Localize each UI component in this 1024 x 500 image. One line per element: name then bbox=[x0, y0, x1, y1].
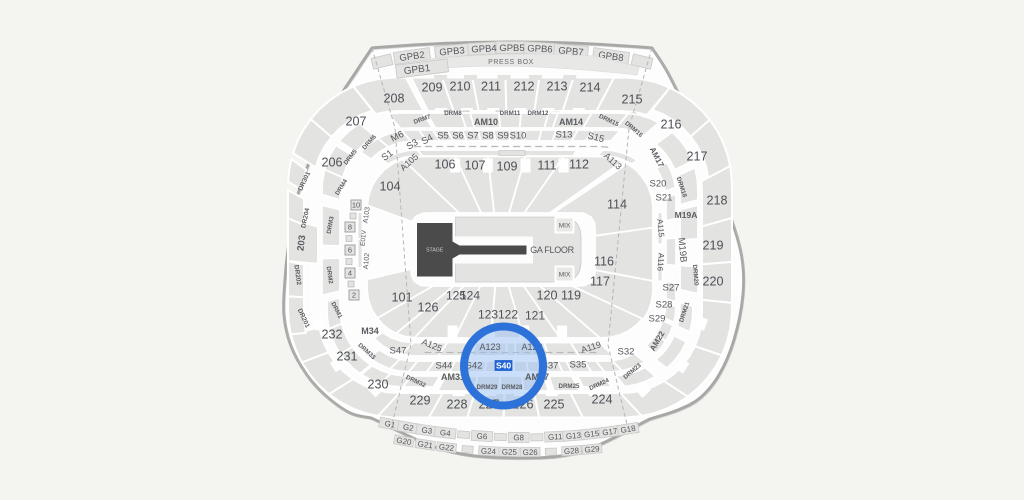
svg-text:216: 216 bbox=[660, 118, 681, 132]
svg-text:232: 232 bbox=[321, 328, 342, 342]
svg-text:S13: S13 bbox=[556, 129, 573, 140]
svg-text:119: 119 bbox=[561, 289, 581, 303]
svg-text:S6: S6 bbox=[452, 130, 464, 141]
svg-text:225: 225 bbox=[543, 398, 564, 412]
svg-text:126: 126 bbox=[417, 301, 438, 315]
svg-text:123: 123 bbox=[478, 307, 498, 321]
svg-text:101: 101 bbox=[391, 291, 412, 305]
svg-text:GPB5: GPB5 bbox=[499, 43, 524, 54]
svg-text:G4: G4 bbox=[439, 428, 451, 438]
svg-text:DRM8: DRM8 bbox=[444, 110, 462, 117]
svg-text:209: 209 bbox=[421, 81, 442, 95]
svg-text:125: 125 bbox=[446, 288, 466, 302]
svg-text:M19B: M19B bbox=[676, 237, 689, 263]
svg-text:228: 228 bbox=[446, 398, 467, 412]
svg-text:122: 122 bbox=[498, 307, 518, 321]
svg-text:G13: G13 bbox=[566, 431, 582, 441]
svg-text:G3: G3 bbox=[421, 425, 433, 436]
svg-text:S40: S40 bbox=[496, 361, 511, 371]
svg-text:G25: G25 bbox=[502, 447, 518, 456]
svg-text:104: 104 bbox=[379, 180, 400, 194]
svg-text:211: 211 bbox=[481, 80, 501, 94]
svg-text:S47: S47 bbox=[390, 345, 407, 356]
svg-text:213: 213 bbox=[546, 80, 567, 94]
svg-text:DRM29: DRM29 bbox=[477, 384, 499, 391]
svg-text:MIX: MIX bbox=[559, 271, 571, 278]
svg-text:S28: S28 bbox=[656, 299, 673, 310]
svg-text:107: 107 bbox=[464, 159, 485, 173]
svg-text:210: 210 bbox=[449, 80, 470, 94]
svg-text:G29: G29 bbox=[584, 444, 600, 454]
svg-text:S44: S44 bbox=[436, 360, 453, 371]
svg-text:112: 112 bbox=[569, 158, 589, 172]
svg-text:A123: A123 bbox=[479, 342, 500, 352]
svg-text:DRM25: DRM25 bbox=[559, 383, 581, 390]
svg-text:M34: M34 bbox=[361, 326, 379, 336]
svg-text:106: 106 bbox=[434, 158, 455, 172]
svg-text:S8: S8 bbox=[482, 130, 494, 141]
svg-text:120: 120 bbox=[536, 289, 557, 303]
svg-text:A102: A102 bbox=[363, 253, 371, 270]
svg-text:G26: G26 bbox=[523, 448, 539, 457]
svg-text:10: 10 bbox=[352, 201, 360, 210]
svg-text:GPB4: GPB4 bbox=[471, 43, 497, 55]
svg-text:S21: S21 bbox=[656, 192, 673, 203]
svg-text:230: 230 bbox=[367, 378, 388, 392]
svg-text:214: 214 bbox=[579, 81, 600, 95]
svg-text:PRESS BOX: PRESS BOX bbox=[488, 59, 534, 66]
svg-text:208: 208 bbox=[383, 92, 404, 106]
svg-text:AM14: AM14 bbox=[559, 117, 583, 127]
svg-text:224: 224 bbox=[591, 393, 612, 407]
svg-text:116: 116 bbox=[594, 255, 614, 269]
svg-text:S32: S32 bbox=[618, 346, 635, 357]
svg-text:229: 229 bbox=[409, 394, 430, 408]
svg-text:212: 212 bbox=[513, 80, 534, 94]
svg-text:S5: S5 bbox=[437, 130, 449, 141]
svg-text:S27: S27 bbox=[663, 282, 680, 293]
svg-text:DRM28: DRM28 bbox=[502, 384, 524, 391]
svg-text:S20: S20 bbox=[650, 178, 667, 189]
svg-text:A116: A116 bbox=[655, 253, 666, 272]
svg-text:STAGE: STAGE bbox=[426, 247, 444, 253]
svg-text:MIX: MIX bbox=[559, 222, 571, 229]
svg-text:G15: G15 bbox=[584, 429, 601, 440]
svg-text:DRM11: DRM11 bbox=[500, 110, 521, 117]
svg-text:S9: S9 bbox=[497, 130, 509, 141]
svg-text:G8: G8 bbox=[513, 433, 524, 442]
svg-text:117: 117 bbox=[590, 275, 610, 289]
svg-text:231: 231 bbox=[336, 350, 357, 364]
svg-text:GA FLOOR: GA FLOOR bbox=[530, 245, 574, 255]
svg-text:G28: G28 bbox=[564, 446, 580, 456]
svg-text:203: 203 bbox=[295, 235, 308, 252]
svg-text:215: 215 bbox=[621, 93, 642, 107]
svg-text:121: 121 bbox=[525, 308, 545, 322]
svg-text:M19A: M19A bbox=[675, 210, 698, 220]
svg-text:8: 8 bbox=[348, 223, 352, 232]
svg-text:218: 218 bbox=[706, 194, 727, 208]
svg-text:109: 109 bbox=[496, 160, 517, 174]
svg-text:114: 114 bbox=[607, 198, 627, 212]
svg-text:G6: G6 bbox=[476, 432, 488, 442]
svg-text:217: 217 bbox=[686, 150, 707, 164]
svg-text:A115: A115 bbox=[655, 219, 666, 238]
svg-text:207: 207 bbox=[345, 115, 366, 129]
svg-text:4: 4 bbox=[348, 269, 352, 278]
svg-text:S7: S7 bbox=[467, 130, 479, 141]
svg-text:219: 219 bbox=[702, 239, 723, 253]
svg-text:G24: G24 bbox=[481, 446, 497, 456]
svg-text:6: 6 bbox=[348, 246, 352, 255]
svg-text:S10: S10 bbox=[510, 130, 527, 141]
svg-text:E01V: E01V bbox=[360, 229, 368, 246]
svg-text:111: 111 bbox=[537, 159, 556, 173]
svg-text:G11: G11 bbox=[548, 432, 563, 442]
svg-text:220: 220 bbox=[702, 275, 723, 289]
svg-text:GPB6: GPB6 bbox=[527, 43, 553, 55]
svg-text:G2: G2 bbox=[402, 422, 415, 433]
svg-text:S35: S35 bbox=[570, 359, 587, 370]
svg-text:S29: S29 bbox=[649, 313, 666, 324]
svg-text:2: 2 bbox=[352, 291, 356, 300]
svg-text:G22: G22 bbox=[438, 442, 455, 453]
svg-text:AM10: AM10 bbox=[474, 117, 498, 127]
svg-text:206: 206 bbox=[321, 156, 342, 170]
svg-text:DRM12: DRM12 bbox=[528, 110, 550, 117]
